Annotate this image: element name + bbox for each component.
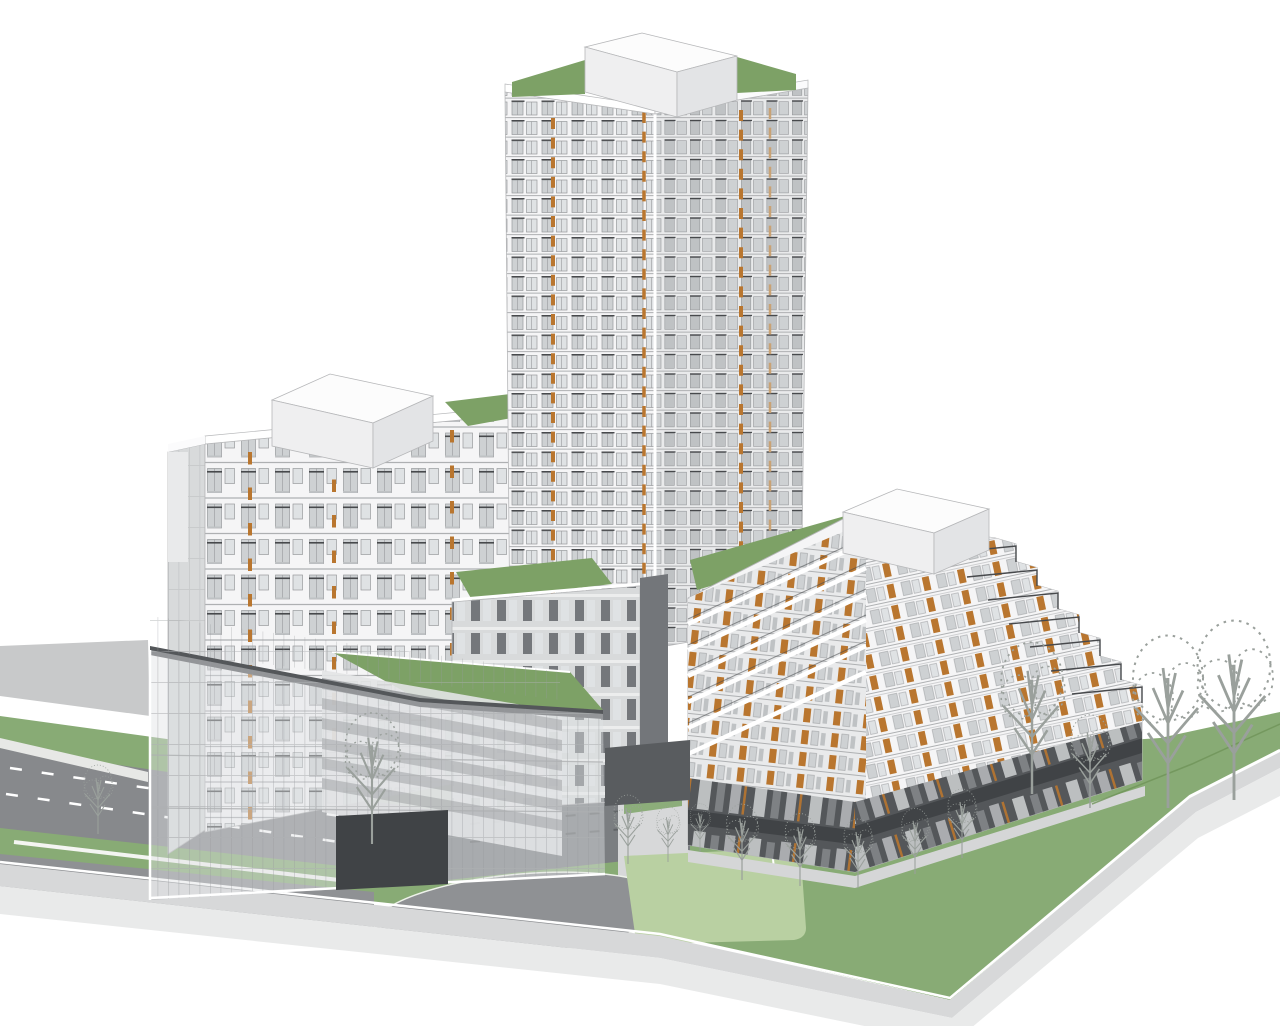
- architectural-rendering: [0, 0, 1280, 1026]
- scene-canvas: [0, 0, 1280, 1026]
- corner-panel: [168, 452, 188, 562]
- podium-archway: [336, 810, 448, 890]
- courtyard-bridge: [605, 740, 690, 806]
